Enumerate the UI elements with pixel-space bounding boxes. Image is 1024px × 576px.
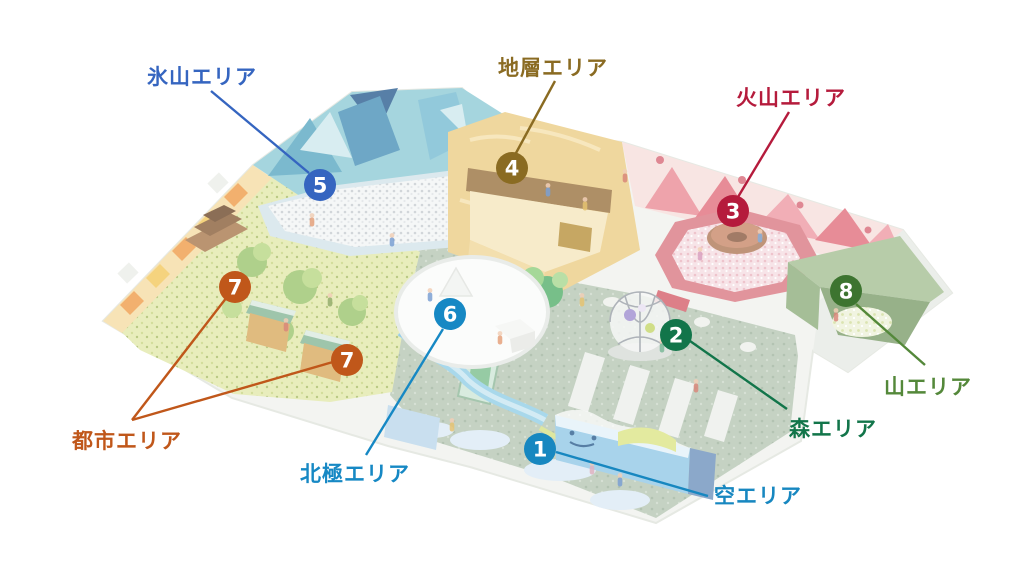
leader-line-3 xyxy=(738,112,789,197)
area-marker-number-5: 5 xyxy=(313,174,328,198)
floor-map-illustration: 1空エリア2森エリア3火山エリア4地層エリア5氷山エリア6北極エリア77都市エリ… xyxy=(0,0,1024,576)
area-label-5: 氷山エリア xyxy=(147,65,257,89)
area-marker-number-8: 8 xyxy=(839,280,854,304)
floor-map-page: 1空エリア2森エリア3火山エリア4地層エリア5氷山エリア6北極エリア77都市エリ… xyxy=(0,0,1024,576)
area-label-2: 森エリア xyxy=(789,417,877,441)
area-marker-number-6: 6 xyxy=(443,303,458,327)
area-marker-number-4: 4 xyxy=(505,157,520,181)
area-marker-number-2: 2 xyxy=(669,324,684,348)
area-marker-number-1: 1 xyxy=(533,438,548,462)
area-marker-number-3: 3 xyxy=(726,200,741,224)
area-marker-number-7: 7 xyxy=(228,276,243,300)
area-label-1: 空エリア xyxy=(714,484,802,508)
area-label-6: 北極エリア xyxy=(300,462,410,486)
area-label-3: 火山エリア xyxy=(736,86,846,110)
area-marker-number-7: 7 xyxy=(340,349,355,373)
area-label-4: 地層エリア xyxy=(498,56,608,80)
area-label-7: 都市エリア xyxy=(71,429,182,453)
area-label-8: 山エリア xyxy=(884,375,972,399)
